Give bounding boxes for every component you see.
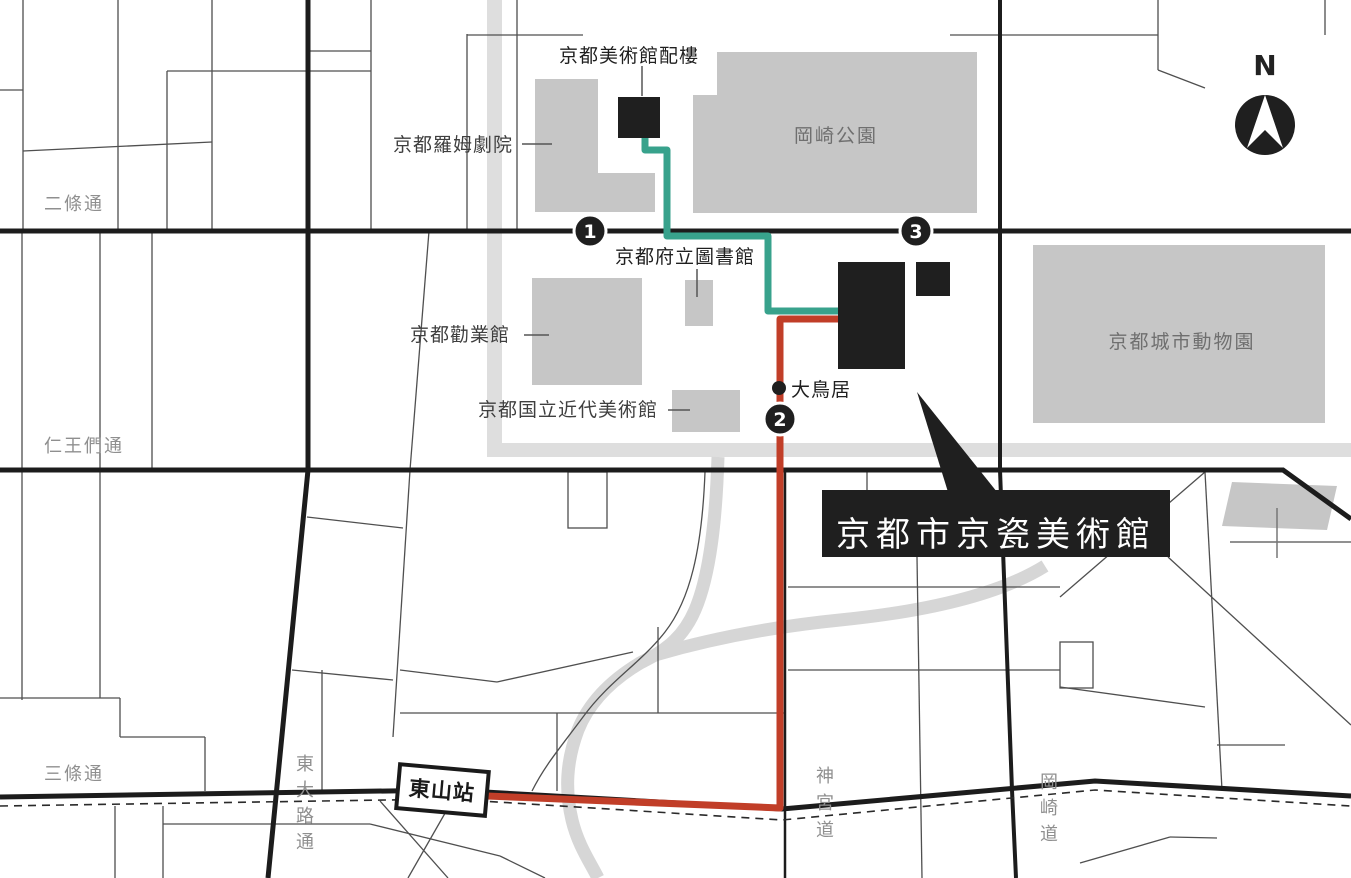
- okazakimichi-road: [1000, 0, 1016, 878]
- marker-2: 2: [764, 403, 796, 435]
- okazakimichi-label: 岡崎道: [1040, 772, 1060, 845]
- minor-streets: [0, 0, 1351, 878]
- svg-text:3: 3: [909, 221, 922, 243]
- higashioji-label: 東大路通: [296, 754, 316, 853]
- kangyokan-building: [532, 278, 642, 385]
- marker-3: 3: [900, 215, 932, 247]
- annex-label: 京都美術館配樓: [559, 45, 699, 67]
- zoo-label: 京都城市動物園: [1108, 331, 1255, 353]
- museum-main-building: [838, 262, 905, 369]
- rohm-theatre-label: 京都羅姆劇院: [393, 134, 513, 156]
- jingumichi-label: 神宮道: [816, 766, 836, 841]
- torii-dot: [772, 381, 786, 395]
- prefectural-library-building: [685, 280, 713, 326]
- svg-text:2: 2: [773, 409, 786, 431]
- sanjo-label: 三條通: [44, 764, 104, 785]
- prefectural-library-label: 京都府立圖書館: [615, 246, 755, 268]
- gray-parallelogram-block: [1222, 482, 1337, 530]
- compass: N: [1235, 49, 1295, 155]
- major-roads: [0, 0, 1351, 878]
- north-letter: N: [1253, 49, 1276, 82]
- museum-small-building: [916, 262, 950, 296]
- momak-building: [672, 390, 740, 432]
- kyoto-museum-access-map: 京都美術館配樓 京都羅姆劇院 京都府立圖書館 京都勸業館 京都国立近代美術館 岡…: [0, 0, 1351, 878]
- callout-pointer: [917, 392, 997, 492]
- nijo-label: 二條通: [44, 194, 104, 215]
- annex-building: [618, 97, 660, 138]
- map-canvas: 京都美術館配樓 京都羅姆劇院 京都府立圖書館 京都勸業館 京都国立近代美術館 岡…: [0, 0, 1351, 878]
- marker-1: 1: [574, 215, 606, 247]
- map-title: 京都市京瓷美術館: [836, 515, 1156, 555]
- torii-label: 大鳥居: [791, 379, 851, 401]
- svg-text:1: 1: [583, 221, 596, 243]
- okazaki-park-label: 岡崎公園: [794, 125, 878, 147]
- station-box: 東山站: [396, 764, 488, 816]
- higashioji-road: [268, 0, 308, 878]
- momak-label: 京都国立近代美術館: [478, 399, 658, 421]
- route-red: [487, 319, 840, 808]
- niomon-label: 仁王們通: [44, 436, 124, 457]
- kangyokan-label: 京都勸業館: [410, 324, 510, 346]
